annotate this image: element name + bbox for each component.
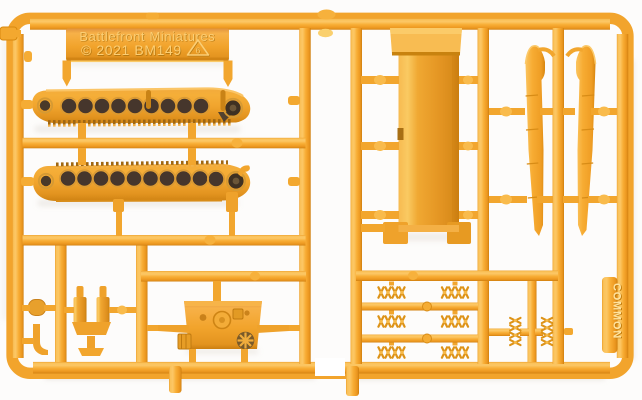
- svg-text:COMMON: COMMON: [611, 283, 623, 339]
- svg-text:6: 6: [196, 46, 201, 56]
- svg-text:© 2021 BM149: © 2021 BM149: [81, 42, 182, 58]
